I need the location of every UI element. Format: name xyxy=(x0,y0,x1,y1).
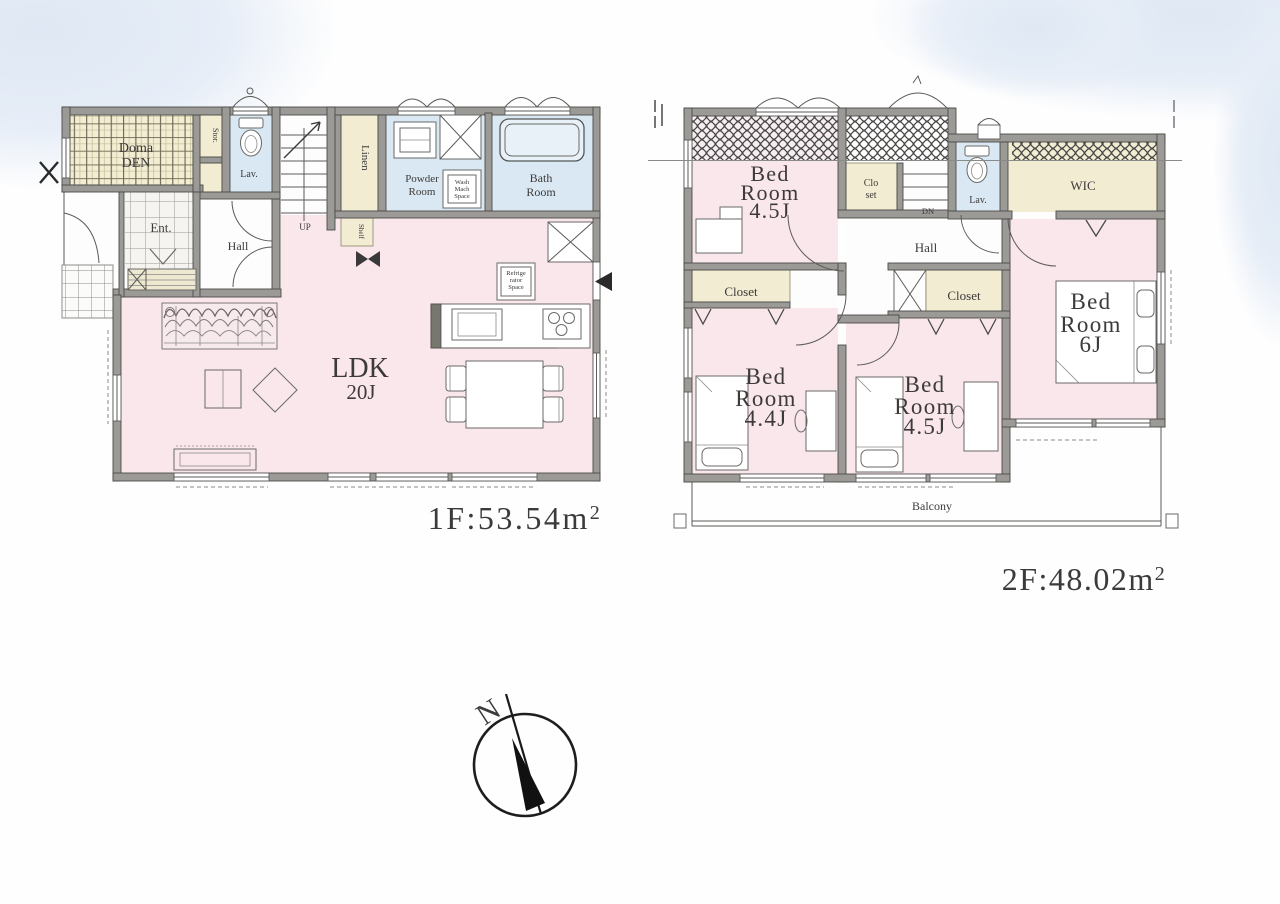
svg-text:Lav.: Lav. xyxy=(240,169,257,180)
svg-text:Hall: Hall xyxy=(915,240,938,255)
svg-text:UP: UP xyxy=(299,222,311,232)
svg-text:Room: Room xyxy=(526,185,556,199)
svg-text:4.4J: 4.4J xyxy=(745,406,788,431)
svg-text:Closet: Closet xyxy=(947,288,981,303)
svg-text:Powder: Powder xyxy=(405,173,439,185)
svg-text:20J: 20J xyxy=(346,380,375,404)
svg-text:Linen: Linen xyxy=(359,145,371,171)
svg-text:Hall: Hall xyxy=(228,239,249,253)
svg-text:Balcony: Balcony xyxy=(912,499,952,513)
svg-text:DEN: DEN xyxy=(122,156,151,171)
svg-text:Wash: Wash xyxy=(455,179,470,186)
svg-text:Doma: Doma xyxy=(119,141,154,156)
svg-text:Space: Space xyxy=(508,284,524,291)
svg-text:2F:48.02m2: 2F:48.02m2 xyxy=(1002,561,1167,597)
svg-text:Shelf: Shelf xyxy=(357,224,365,239)
svg-text:Room: Room xyxy=(409,186,436,198)
svg-text:Clo: Clo xyxy=(864,178,878,189)
svg-text:set: set xyxy=(865,190,876,201)
svg-text:WIC: WIC xyxy=(1070,178,1095,193)
svg-text:Space: Space xyxy=(454,193,470,200)
svg-text:1F:53.54m2: 1F:53.54m2 xyxy=(428,500,603,536)
svg-text:DN: DN xyxy=(922,206,934,216)
svg-text:Lav.: Lav. xyxy=(969,195,986,206)
svg-text:Ent.: Ent. xyxy=(150,220,171,235)
svg-text:Refrige: Refrige xyxy=(506,270,526,277)
svg-text:Bath: Bath xyxy=(530,171,553,185)
svg-text:Stor.: Stor. xyxy=(211,128,220,143)
svg-text:6J: 6J xyxy=(1079,332,1102,357)
svg-text:Bed: Bed xyxy=(1071,289,1112,314)
svg-text:4.5J: 4.5J xyxy=(749,198,790,223)
svg-text:rator: rator xyxy=(510,277,523,284)
svg-text:Closet: Closet xyxy=(724,284,758,299)
svg-text:4.5J: 4.5J xyxy=(904,414,947,439)
svg-text:Mach: Mach xyxy=(455,186,471,193)
